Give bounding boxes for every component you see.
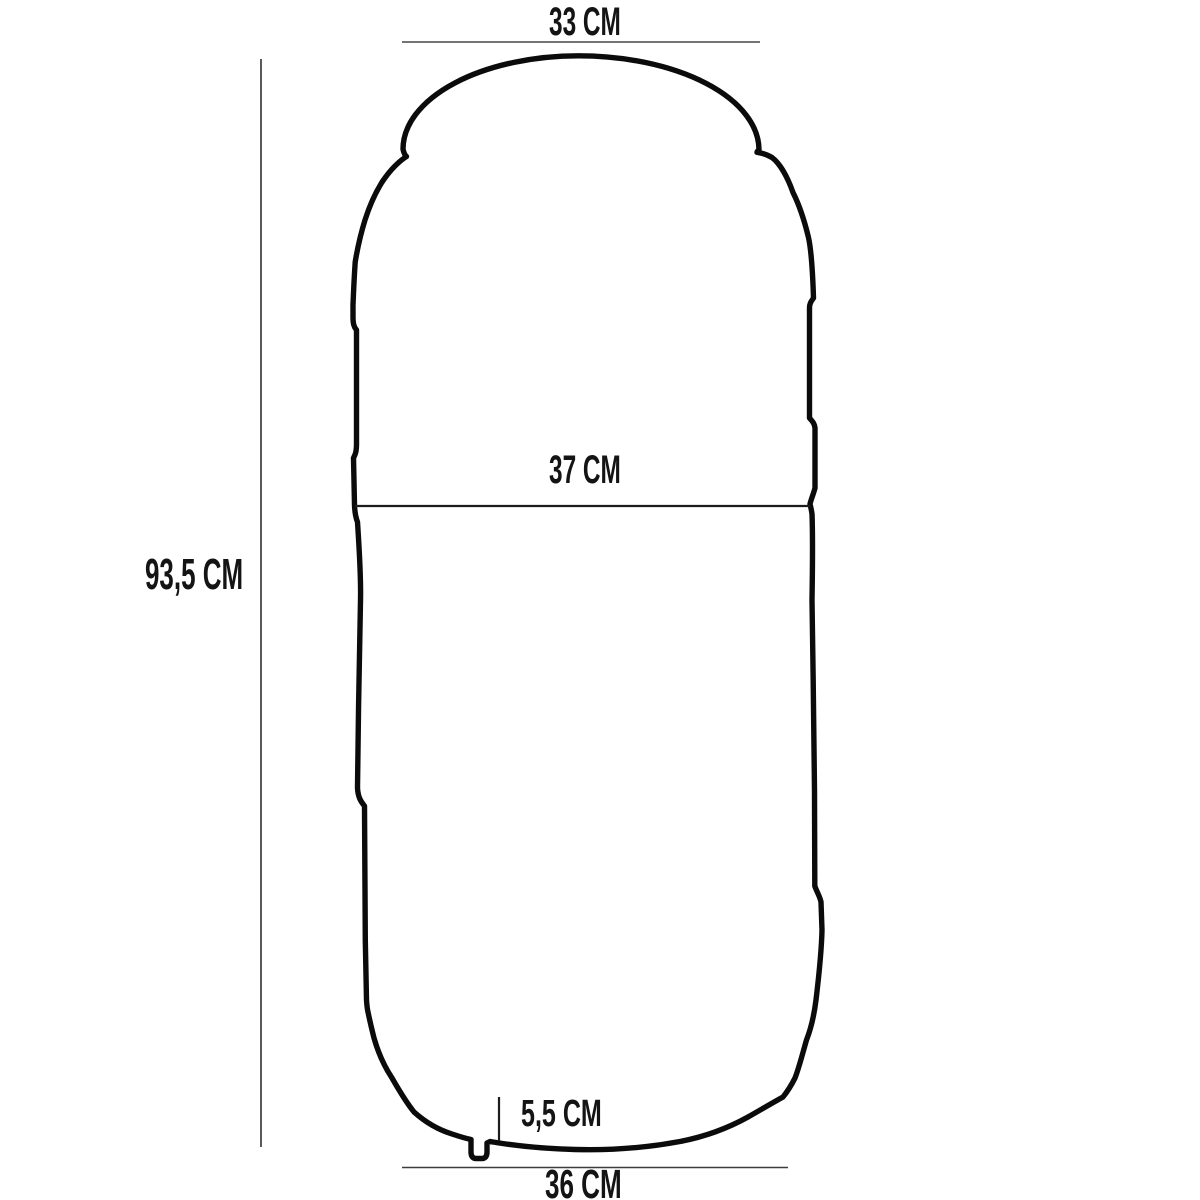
svg-text:33 CM: 33 CM (549, 0, 621, 45)
svg-text:37 CM: 37 CM (549, 448, 621, 493)
svg-text:93,5 CM: 93,5 CM (145, 549, 243, 599)
svg-text:36 CM: 36 CM (545, 1162, 622, 1200)
svg-text:5,5 CM: 5,5 CM (521, 1092, 602, 1134)
